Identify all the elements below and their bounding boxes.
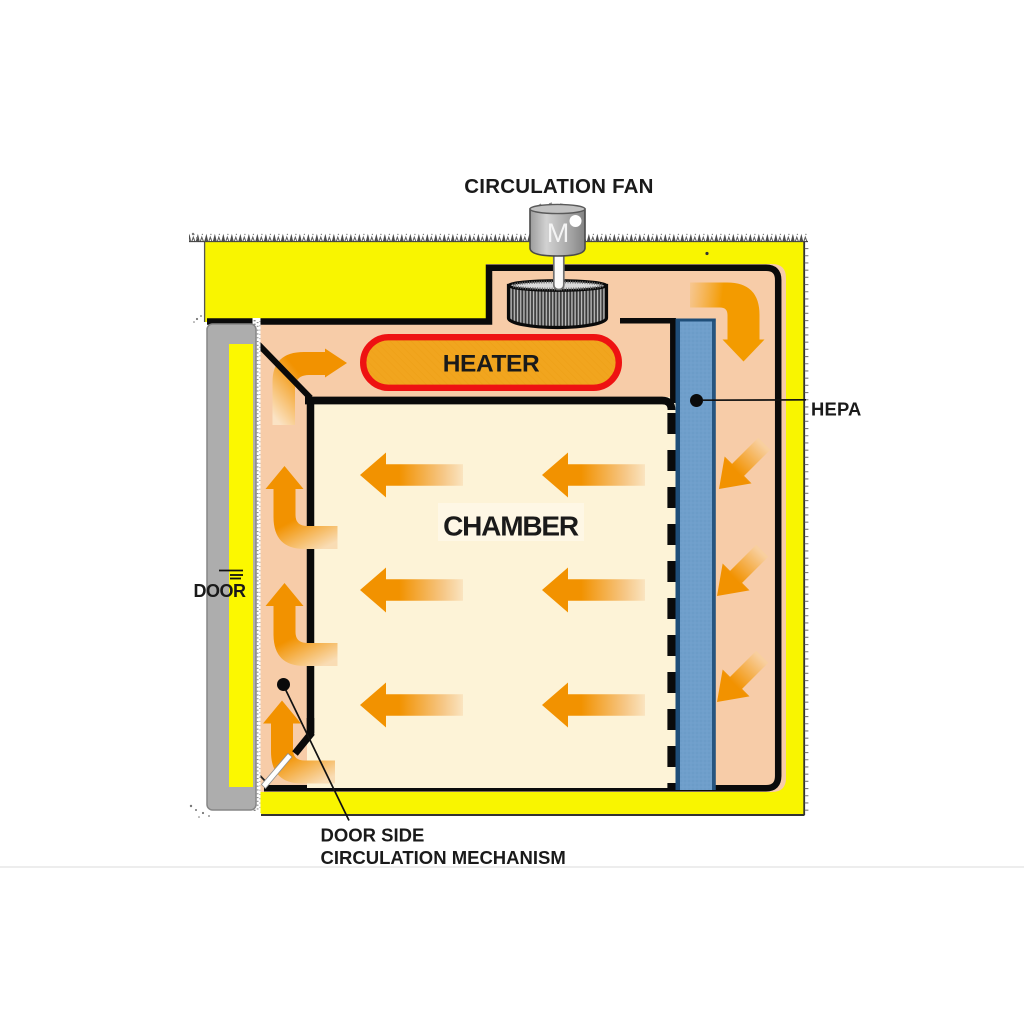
svg-text:HEATER: HEATER [443, 351, 540, 378]
svg-text:CIRCULATION MECHANISM: CIRCULATION MECHANISM [321, 847, 566, 868]
svg-text:CHAMBER: CHAMBER [443, 511, 579, 542]
svg-text:HEPA: HEPA [811, 399, 862, 420]
svg-text:DOOR: DOOR [194, 581, 247, 601]
svg-text:DOOR SIDE: DOOR SIDE [321, 825, 425, 846]
svg-text:M: M [547, 218, 570, 248]
svg-text:CIRCULATION FAN: CIRCULATION FAN [464, 175, 653, 198]
